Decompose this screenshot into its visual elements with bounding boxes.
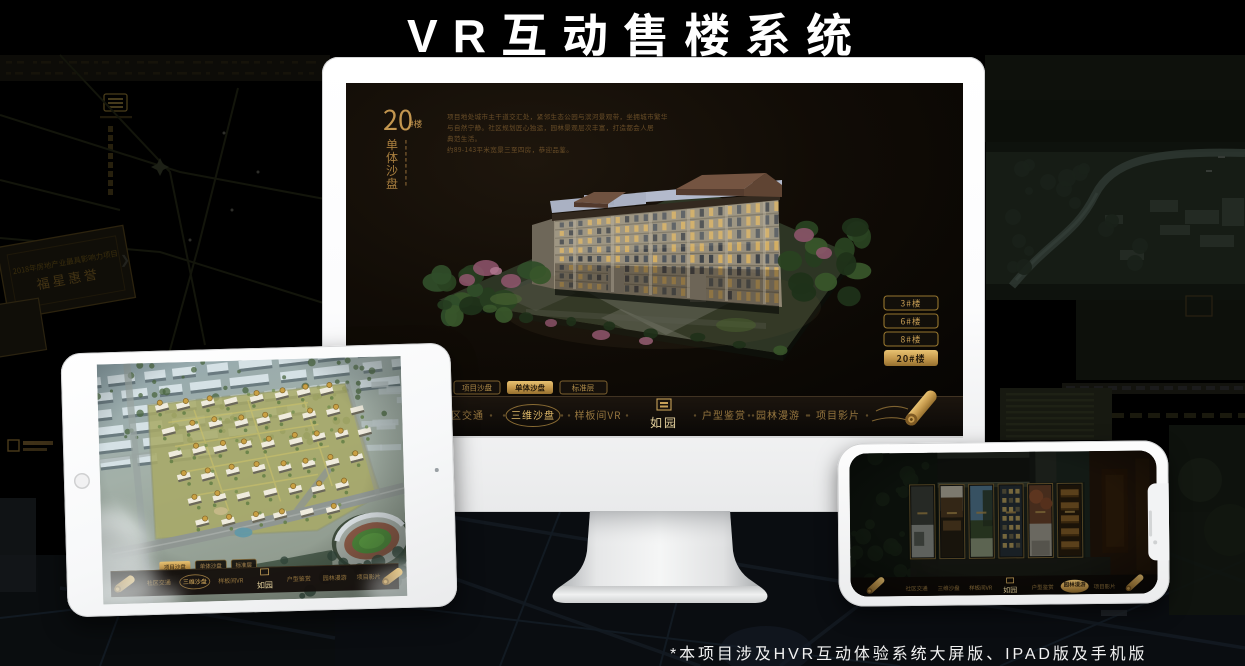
svg-text:户型鉴赏: 户型鉴赏: [287, 574, 311, 584]
svg-text:与自然宁静。社区规划匠心独运，园林景观层次丰富，打造都会人居: 与自然宁静。社区规划匠心独运，园林景观层次丰富，打造都会人居: [447, 122, 654, 132]
svg-text:#楼: #楼: [409, 118, 423, 130]
svg-text:三维沙盘: 三维沙盘: [511, 407, 555, 422]
svg-text:3#楼: 3#楼: [901, 298, 922, 310]
svg-text:样板间VR: 样板间VR: [218, 575, 244, 585]
svg-text:三维沙盘: 三维沙盘: [183, 576, 207, 586]
svg-text:8#楼: 8#楼: [901, 334, 922, 346]
svg-text:项目影片: 项目影片: [816, 407, 860, 422]
svg-text:园林漫游: 园林漫游: [756, 407, 800, 422]
svg-text:20#楼: 20#楼: [897, 352, 926, 365]
svg-text:❯: ❯: [120, 251, 130, 268]
svg-text:园林漫游: 园林漫游: [323, 573, 347, 583]
svg-text:项目地处城市主干道交汇处，紧邻生态公园与滨河景观带，坐拥城市: 项目地处城市主干道交汇处，紧邻生态公园与滨河景观带，坐拥城市繁华: [447, 111, 668, 121]
svg-text:样板间VR: 样板间VR: [574, 407, 621, 422]
svg-text:约89-143平米宽景三至四房，恭迎品鉴。: 约89-143平米宽景三至四房，恭迎品鉴。: [447, 144, 573, 154]
svg-text:户型鉴赏: 户型鉴赏: [702, 407, 746, 422]
svg-text:如园: 如园: [650, 414, 678, 431]
svg-text:典范生活。: 典范生活。: [447, 133, 482, 143]
svg-text:如园: 如园: [257, 580, 273, 591]
svg-text:标准层: 标准层: [572, 383, 595, 394]
svg-text:项目沙盘: 项目沙盘: [462, 383, 492, 394]
svg-text:单体沙盘: 单体沙盘: [515, 383, 545, 394]
svg-text:6#楼: 6#楼: [901, 316, 922, 328]
svg-text:盘: 盘: [386, 175, 398, 192]
